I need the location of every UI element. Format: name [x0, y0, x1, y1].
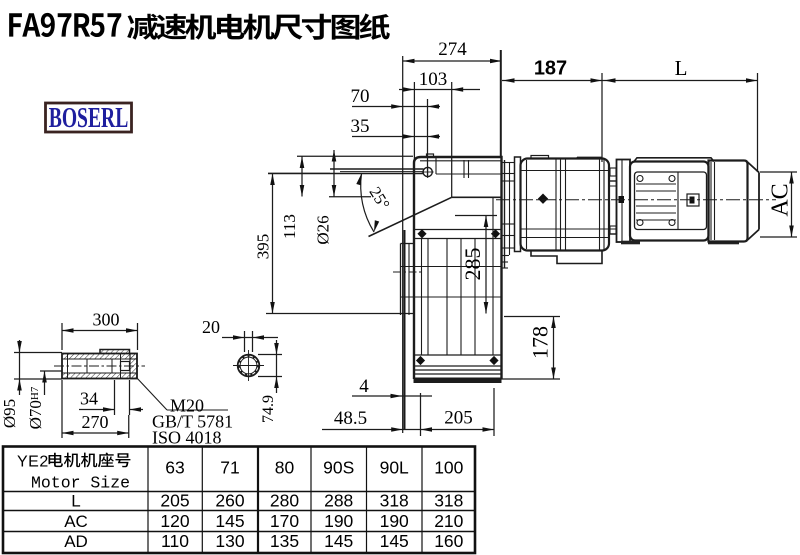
svg-text:Ø26: Ø26 — [314, 215, 333, 244]
svg-text:205: 205 — [160, 491, 189, 511]
svg-text:35: 35 — [351, 116, 370, 137]
svg-text:130: 130 — [215, 531, 244, 551]
svg-text:4: 4 — [359, 376, 369, 397]
svg-text:AD: AD — [64, 532, 88, 551]
svg-text:25°: 25° — [365, 183, 393, 213]
svg-text:187: 187 — [534, 58, 567, 80]
svg-text:90L: 90L — [380, 458, 409, 478]
svg-text:318: 318 — [380, 491, 409, 511]
svg-text:34: 34 — [80, 389, 98, 409]
svg-text:80: 80 — [275, 458, 295, 478]
svg-text:90S: 90S — [323, 458, 354, 478]
svg-text:48.5: 48.5 — [334, 408, 367, 429]
svg-text:20: 20 — [202, 317, 220, 337]
svg-text:300: 300 — [93, 310, 120, 330]
svg-text:ISO 4018: ISO 4018 — [152, 428, 222, 448]
svg-text:YE2: YE2 — [17, 454, 49, 471]
svg-text:160: 160 — [434, 531, 463, 551]
svg-text:135: 135 — [270, 531, 299, 551]
svg-text:70: 70 — [351, 86, 370, 107]
svg-text:288: 288 — [324, 491, 353, 511]
svg-text:103: 103 — [419, 69, 448, 90]
svg-text:190: 190 — [324, 511, 353, 531]
svg-text:L: L — [71, 492, 80, 511]
svg-text:110: 110 — [161, 531, 189, 551]
svg-text:L: L — [675, 56, 688, 80]
svg-text:145: 145 — [215, 511, 244, 531]
svg-text:AC: AC — [64, 512, 88, 531]
svg-text:113: 113 — [280, 214, 299, 239]
svg-text:210: 210 — [434, 511, 463, 531]
svg-text:260: 260 — [215, 491, 244, 511]
svg-text:318: 318 — [434, 491, 463, 511]
svg-text:71: 71 — [220, 458, 239, 478]
svg-text:63: 63 — [165, 458, 184, 478]
svg-text:AC: AC — [768, 183, 794, 216]
svg-text:190: 190 — [380, 511, 409, 531]
svg-text:145: 145 — [380, 531, 409, 551]
svg-text:280: 280 — [270, 491, 299, 511]
svg-text:Ø70H7: Ø70H7 — [26, 386, 45, 429]
svg-text:74.9: 74.9 — [260, 395, 277, 423]
svg-text:274: 274 — [438, 39, 467, 60]
svg-text:178: 178 — [528, 326, 553, 359]
svg-text:170: 170 — [270, 511, 299, 531]
svg-text:100: 100 — [434, 458, 463, 478]
svg-text:285: 285 — [460, 248, 485, 281]
svg-text:395: 395 — [254, 234, 273, 260]
svg-text:205: 205 — [444, 408, 473, 429]
svg-text:BOSERL: BOSERL — [49, 102, 129, 134]
svg-text:Ø95: Ø95 — [0, 399, 19, 428]
svg-text:145: 145 — [324, 531, 353, 551]
svg-text:120: 120 — [160, 511, 189, 531]
svg-text:Motor Size: Motor Size — [31, 474, 130, 493]
svg-text:270: 270 — [82, 412, 109, 432]
